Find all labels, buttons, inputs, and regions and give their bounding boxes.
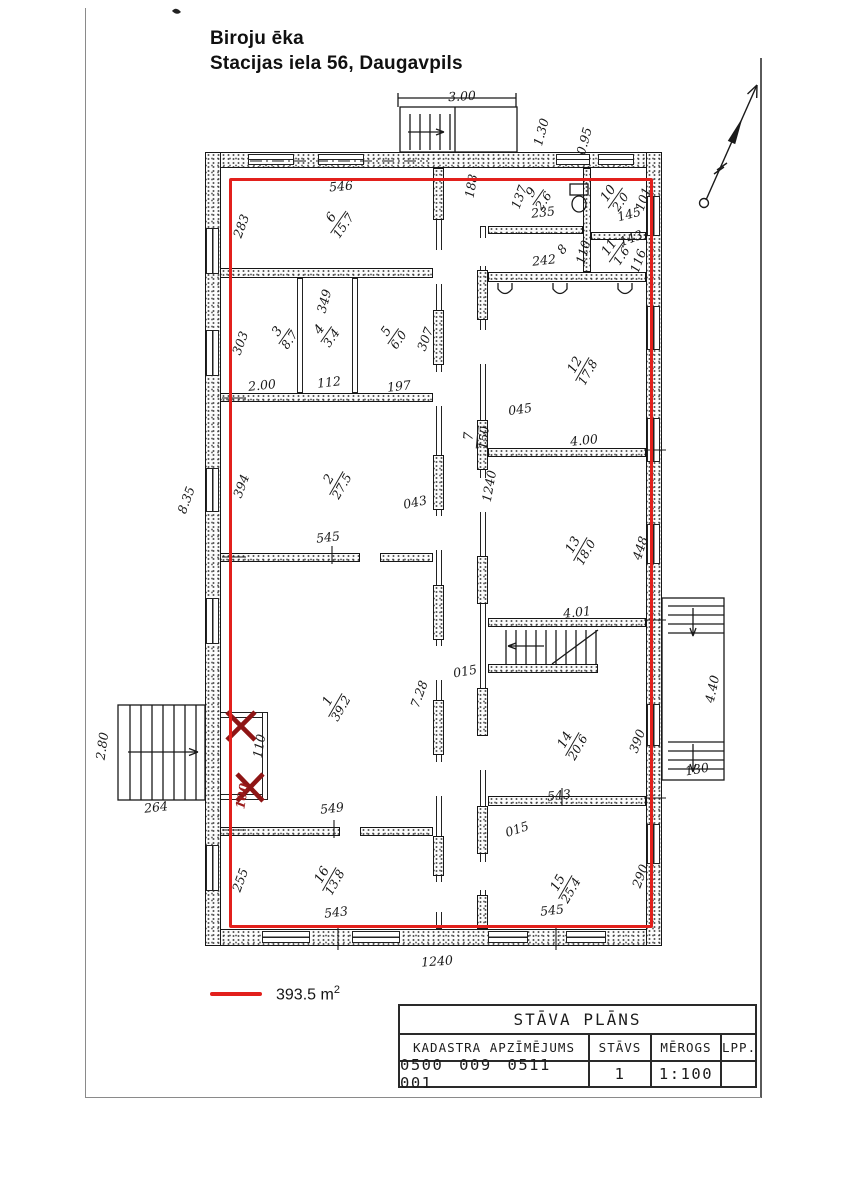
scanned-floor-plan-page: Biroju ēka Stacijas iela 56, Daugavpils [0,0,847,1200]
dimension-label: 130 [684,760,710,779]
dimension-label: 8.35 [174,484,198,515]
header-floor: STĀVS [590,1035,652,1062]
dimension-label: 0.95 [573,126,595,157]
value-scale: 1:100 [652,1062,722,1086]
title-block-title: STĀVA PLĀNS [400,1006,755,1035]
legend-area-text: 393.5 m2 [276,984,340,1004]
value-page [722,1062,755,1086]
legend-red-line [210,992,262,996]
header-scale: MĒROGS [652,1035,722,1062]
dimension-label: 2.80 [93,731,112,761]
dimension-label: 1240 [421,952,454,969]
dimension-label: 4.40 [702,674,722,704]
header-page: LPP. [722,1035,756,1062]
title-block: STĀVA PLĀNS KADASTRA APZĪMĒJUMS STĀVS MĒ… [398,1004,757,1088]
dimension-label: 264 [143,798,168,815]
dimension-label: 3.00 [448,88,477,104]
legend: 393.5 m2 [210,984,340,1004]
value-cadastre: 0500 009 0511 001 [400,1062,590,1086]
value-floor: 1 [590,1062,652,1086]
dimension-label: 1.30 [530,117,552,148]
highlighted-area-outline [229,178,653,928]
